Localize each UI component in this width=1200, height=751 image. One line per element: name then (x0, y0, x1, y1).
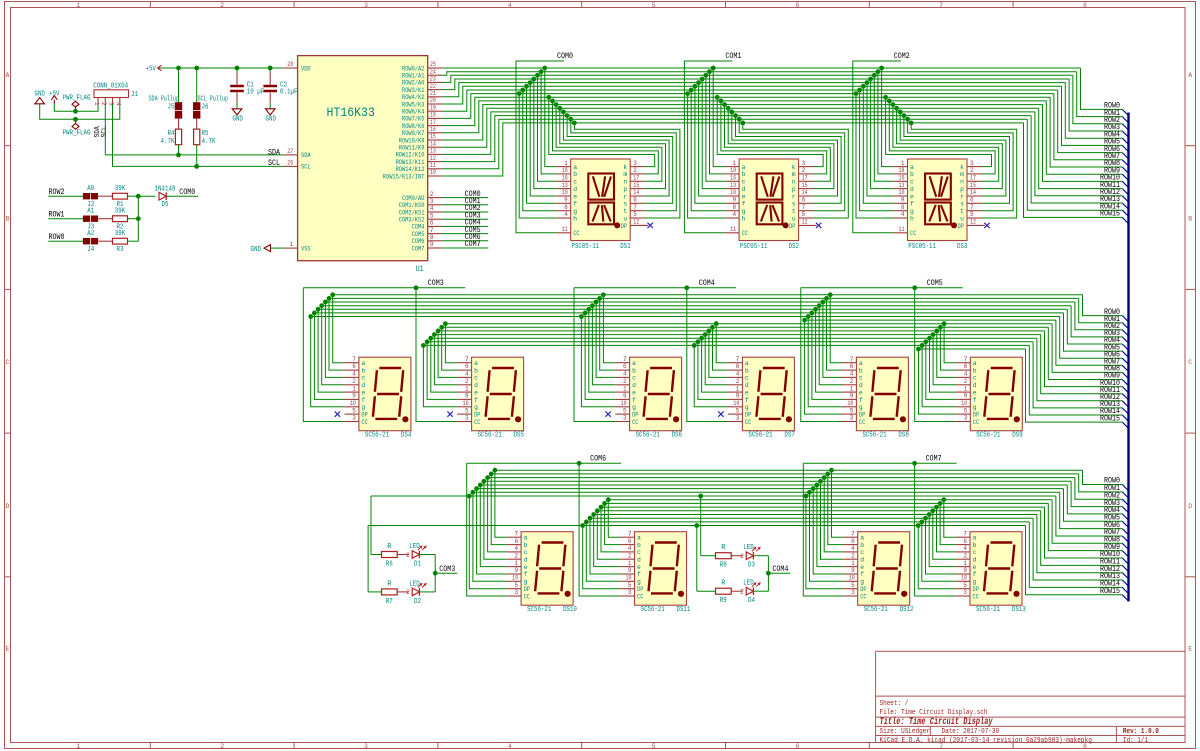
svg-text:PSC05-11: PSC05-11 (740, 243, 768, 251)
svg-text:b: b (973, 542, 977, 549)
svg-text:4: 4 (964, 371, 968, 378)
svg-text:E: E (6, 646, 10, 653)
svg-text:2: 2 (430, 191, 434, 198)
svg-text:VDD: VDD (301, 65, 311, 72)
svg-text:6: 6 (802, 197, 806, 204)
svg-text:9: 9 (623, 393, 627, 400)
svg-text:10: 10 (847, 400, 853, 407)
svg-text:SC56-21: SC56-21 (478, 432, 502, 440)
svg-text:R3: R3 (117, 246, 124, 254)
svg-text:4: 4 (732, 211, 736, 218)
svg-text:DP: DP (973, 411, 980, 418)
svg-text:VSS: VSS (301, 245, 311, 252)
svg-text:9: 9 (430, 241, 434, 248)
svg-text:3: 3 (364, 743, 368, 750)
svg-text:n: n (960, 179, 964, 186)
svg-text:a: a (632, 360, 636, 367)
svg-text:2: 2 (514, 553, 518, 560)
svg-text:5: 5 (430, 212, 434, 219)
svg-text:5: 5 (623, 407, 627, 414)
svg-text:s: s (792, 201, 796, 208)
svg-text:6: 6 (623, 363, 627, 370)
svg-text:b: b (361, 367, 365, 374)
svg-text:D3: D3 (748, 562, 755, 570)
svg-text:b: b (524, 542, 528, 549)
svg-text:c: c (637, 549, 641, 556)
svg-text:g: g (637, 579, 641, 586)
svg-text:3: 3 (430, 198, 434, 205)
svg-text:10: 10 (621, 400, 627, 407)
svg-text:GND: GND (232, 116, 243, 124)
svg-text:m: m (960, 171, 964, 178)
svg-text:7: 7 (802, 204, 806, 211)
svg-text:CC: CC (745, 419, 752, 426)
svg-text:6: 6 (628, 538, 632, 545)
svg-text:COM6: COM6 (590, 455, 606, 464)
svg-text:1: 1 (564, 160, 568, 167)
svg-text:COM3/KS2: COM3/KS2 (399, 217, 425, 224)
svg-text:ROW7/K5: ROW7/K5 (402, 116, 425, 123)
svg-text:p: p (792, 186, 796, 193)
svg-text:6: 6 (352, 363, 356, 370)
svg-text:d: d (910, 186, 914, 193)
svg-text:n: n (623, 179, 627, 186)
svg-text:ROW10/K8: ROW10/K8 (399, 137, 425, 144)
svg-text:SC56-21: SC56-21 (527, 606, 551, 614)
svg-text:DS3: DS3 (957, 243, 967, 251)
svg-text:a: a (860, 535, 864, 542)
svg-text:25: 25 (430, 61, 436, 68)
svg-text:5: 5 (652, 743, 656, 750)
svg-text:DP: DP (637, 586, 644, 593)
svg-text:3: 3 (736, 415, 740, 422)
svg-text:d: d (637, 557, 641, 564)
svg-text:e: e (637, 564, 641, 571)
svg-text:DS1: DS1 (620, 243, 630, 251)
svg-text:c: c (632, 375, 636, 382)
svg-text:2: 2 (406, 589, 410, 596)
svg-text:+5V: +5V (49, 91, 60, 99)
svg-text:39K: 39K (115, 208, 126, 216)
svg-text:g: g (742, 208, 746, 215)
svg-text:k: k (960, 164, 964, 171)
svg-text:ROW15: ROW15 (1100, 414, 1120, 423)
svg-text:10: 10 (730, 189, 736, 196)
svg-text:4: 4 (736, 371, 740, 378)
svg-text:14: 14 (430, 140, 436, 147)
svg-text:19: 19 (430, 104, 436, 111)
svg-text:b: b (632, 367, 636, 374)
svg-text:SDA: SDA (268, 148, 280, 157)
svg-text:3: 3 (364, 2, 368, 9)
svg-text:10: 10 (961, 575, 967, 582)
svg-text:24: 24 (430, 68, 436, 75)
svg-text:e: e (632, 389, 636, 396)
svg-text:2: 2 (970, 167, 974, 174)
svg-text:13: 13 (730, 182, 736, 189)
svg-text:10: 10 (512, 575, 518, 582)
svg-text:DP: DP (859, 411, 866, 418)
svg-text:2: 2 (352, 378, 356, 385)
svg-text:A1: A1 (87, 208, 94, 216)
svg-text:4: 4 (115, 102, 122, 106)
svg-text:a: a (637, 535, 641, 542)
svg-text:a: a (524, 535, 528, 542)
svg-text:CC: CC (910, 230, 917, 237)
svg-text:e: e (910, 193, 914, 200)
svg-text:f: f (361, 397, 365, 404)
svg-text:e: e (361, 389, 365, 396)
svg-text:CC: CC (973, 593, 980, 600)
svg-text:14: 14 (802, 189, 808, 196)
svg-text:2: 2 (628, 553, 632, 560)
svg-text:ROW13/K11: ROW13/K11 (396, 159, 425, 166)
svg-text:3: 3 (851, 589, 855, 596)
svg-text:2: 2 (220, 743, 224, 750)
svg-text:7: 7 (352, 356, 356, 363)
svg-text:m: m (792, 171, 796, 178)
svg-text:4: 4 (963, 545, 967, 552)
svg-text:16: 16 (730, 175, 736, 182)
svg-text:7: 7 (628, 530, 632, 537)
svg-text:g: g (910, 208, 914, 215)
svg-text:+5V: +5V (146, 65, 157, 73)
svg-text:COM2: COM2 (894, 52, 910, 61)
svg-text:1: 1 (623, 385, 627, 392)
svg-text:d: d (524, 557, 528, 564)
svg-text:DP: DP (524, 586, 531, 593)
svg-text:R8: R8 (720, 562, 727, 570)
svg-text:CC: CC (742, 230, 749, 237)
svg-text:5: 5 (465, 407, 469, 414)
svg-text:4.7K: 4.7K (202, 138, 217, 146)
svg-text:5: 5 (628, 582, 632, 589)
svg-text:2: 2 (736, 378, 740, 385)
svg-text:DS5: DS5 (514, 432, 524, 440)
svg-text:CONN_01X04: CONN_01X04 (93, 82, 128, 90)
svg-text:n: n (792, 179, 796, 186)
svg-text:1: 1 (901, 160, 905, 167)
svg-text:16: 16 (430, 126, 436, 133)
svg-text:a: a (742, 164, 746, 171)
svg-text:11: 11 (430, 162, 436, 169)
svg-text:5: 5 (970, 211, 974, 218)
svg-text:ROW15: ROW15 (1100, 587, 1120, 596)
svg-text:21: 21 (430, 90, 436, 97)
svg-text:DP: DP (958, 223, 965, 230)
svg-text:CC: CC (524, 593, 531, 600)
svg-text:3: 3 (964, 415, 968, 422)
svg-text:9: 9 (564, 197, 568, 204)
svg-text:R7: R7 (386, 598, 393, 606)
svg-text:SCL Pullup: SCL Pullup (198, 96, 229, 104)
svg-text:4: 4 (850, 371, 854, 378)
svg-text:5: 5 (963, 582, 967, 589)
svg-text:12: 12 (430, 155, 436, 162)
svg-text:p: p (623, 186, 627, 193)
svg-text:u: u (960, 215, 964, 222)
svg-text:b: b (745, 367, 749, 374)
svg-text:10: 10 (849, 575, 855, 582)
svg-text:8: 8 (430, 234, 434, 241)
svg-text:7: 7 (939, 2, 943, 9)
svg-text:D4: D4 (748, 597, 755, 605)
svg-text:DP: DP (860, 586, 867, 593)
svg-text:COM0: COM0 (557, 52, 573, 61)
svg-text:3: 3 (623, 415, 627, 422)
svg-text:ROW14/K12: ROW14/K12 (396, 166, 425, 173)
svg-text:14: 14 (633, 189, 639, 196)
svg-text:13: 13 (899, 182, 905, 189)
svg-text:4: 4 (514, 545, 518, 552)
svg-text:B: B (6, 216, 10, 223)
svg-text:11: 11 (562, 226, 568, 233)
svg-text:B: B (1188, 216, 1192, 223)
svg-text:26: 26 (287, 159, 293, 166)
svg-text:6: 6 (430, 220, 434, 227)
svg-text:a: a (910, 164, 914, 171)
svg-text:SC56-21: SC56-21 (365, 432, 389, 440)
svg-text:c: c (973, 549, 977, 556)
svg-text:ROW9/K7: ROW9/K7 (402, 130, 425, 137)
svg-text:1: 1 (465, 385, 469, 392)
svg-text:SC56-21: SC56-21 (636, 432, 660, 440)
svg-text:b: b (973, 367, 977, 374)
svg-text:4: 4 (352, 371, 356, 378)
svg-text:5: 5 (850, 407, 854, 414)
svg-text:e: e (573, 193, 577, 200)
svg-text:1: 1 (732, 160, 736, 167)
svg-text:a: a (745, 360, 749, 367)
svg-text:2: 2 (220, 2, 224, 9)
svg-text:COM7: COM7 (926, 455, 942, 464)
svg-text:1: 1 (76, 2, 80, 9)
svg-text:GND: GND (251, 246, 262, 254)
svg-text:CC: CC (361, 419, 368, 426)
svg-text:18: 18 (730, 167, 736, 174)
svg-text:7: 7 (736, 356, 740, 363)
svg-text:SC56-21: SC56-21 (748, 432, 772, 440)
svg-text:5: 5 (851, 582, 855, 589)
svg-text:9: 9 (901, 197, 905, 204)
svg-text:A0: A0 (87, 185, 94, 193)
svg-text:18: 18 (899, 167, 905, 174)
svg-text:ROW2/A0: ROW2/A0 (402, 80, 425, 87)
svg-text:d: d (632, 382, 636, 389)
svg-text:16: 16 (899, 175, 905, 182)
svg-text:g: g (573, 208, 577, 215)
svg-text:DP: DP (632, 411, 639, 418)
svg-text:J5: J5 (168, 104, 175, 112)
svg-text:2: 2 (740, 589, 744, 596)
svg-text:m: m (623, 171, 627, 178)
svg-text:4: 4 (465, 371, 469, 378)
svg-text:COM5: COM5 (412, 231, 425, 238)
svg-text:Title: Time Circuit Display: Title: Time Circuit Display (880, 716, 994, 728)
svg-text:D: D (6, 503, 10, 510)
svg-text:39K: 39K (115, 230, 126, 238)
svg-text:ROW15/K13/INT: ROW15/K13/INT (383, 173, 425, 180)
svg-text:1: 1 (93, 102, 100, 106)
svg-text:PSC05-11: PSC05-11 (908, 243, 936, 251)
svg-text:R4: R4 (168, 130, 175, 138)
svg-text:18: 18 (562, 167, 568, 174)
svg-text:g: g (474, 404, 478, 411)
svg-text:h: h (910, 215, 914, 222)
svg-text:2: 2 (465, 378, 469, 385)
svg-text:SC56-21: SC56-21 (864, 606, 888, 614)
svg-text:3: 3 (352, 415, 356, 422)
svg-text:ROW0/A2: ROW0/A2 (402, 65, 425, 72)
svg-text:SC56-21: SC56-21 (641, 606, 665, 614)
svg-text:10: 10 (562, 189, 568, 196)
svg-text:b: b (742, 171, 746, 178)
svg-text:8: 8 (901, 204, 905, 211)
svg-text:KiCad E.D.A. kicad (2017-03-1: KiCad E.D.A. kicad (2017-03-14 revision … (880, 737, 1092, 745)
svg-text:PSC05-11: PSC05-11 (572, 243, 600, 251)
svg-text:d: d (859, 382, 863, 389)
svg-text:1: 1 (963, 560, 967, 567)
svg-text:e: e (524, 564, 528, 571)
svg-text:c: c (573, 179, 577, 186)
svg-text:g: g (973, 404, 977, 411)
svg-text:b: b (573, 171, 577, 178)
svg-text:9: 9 (628, 567, 632, 574)
svg-text:CC: CC (632, 419, 639, 426)
svg-text:14: 14 (970, 189, 976, 196)
svg-text:23: 23 (430, 76, 436, 83)
svg-text:f: f (742, 201, 746, 208)
svg-text:p: p (960, 186, 964, 193)
svg-text:Date: 2017-07-30: Date: 2017-07-30 (942, 728, 1000, 736)
svg-text:SCL: SCL (301, 164, 311, 171)
svg-text:4.7K: 4.7K (161, 138, 176, 146)
svg-text:7: 7 (963, 530, 967, 537)
svg-text:D5: D5 (162, 201, 169, 209)
svg-text:d: d (742, 186, 746, 193)
svg-text:4: 4 (901, 211, 905, 218)
svg-text:d: d (474, 382, 478, 389)
svg-text:R6: R6 (386, 561, 393, 569)
svg-text:t: t (792, 208, 796, 215)
svg-text:r: r (792, 193, 796, 200)
svg-text:SC56-21: SC56-21 (976, 606, 1000, 614)
svg-text:7: 7 (465, 356, 469, 363)
svg-text:4: 4 (508, 743, 512, 750)
svg-text:D: D (1188, 503, 1192, 510)
svg-text:f: f (973, 571, 977, 578)
svg-text:GND: GND (266, 116, 277, 124)
svg-text:DP: DP (745, 411, 752, 418)
svg-text:7: 7 (970, 204, 974, 211)
svg-text:2: 2 (850, 378, 854, 385)
svg-text:10: 10 (350, 400, 356, 407)
svg-text:e: e (973, 564, 977, 571)
svg-text:2: 2 (633, 167, 637, 174)
svg-text:DS10: DS10 (563, 606, 577, 614)
svg-text:10: 10 (961, 400, 967, 407)
svg-text:6: 6 (795, 2, 799, 9)
svg-text:5: 5 (652, 2, 656, 9)
svg-text:4: 4 (508, 2, 512, 9)
svg-text:a: a (973, 535, 977, 542)
svg-text:COM1: COM1 (725, 52, 741, 61)
svg-text:r: r (623, 193, 627, 200)
svg-text:9: 9 (964, 393, 968, 400)
svg-text:E: E (1188, 646, 1192, 653)
svg-text:15: 15 (430, 133, 436, 140)
svg-text:3: 3 (970, 160, 974, 167)
svg-text:9: 9 (732, 197, 736, 204)
svg-text:R5: R5 (202, 130, 209, 138)
svg-text:c: c (860, 549, 864, 556)
svg-text:DS7: DS7 (784, 432, 794, 440)
svg-text:t: t (623, 208, 627, 215)
svg-text:J1: J1 (131, 91, 138, 99)
svg-text:7: 7 (851, 530, 855, 537)
svg-text:c: c (361, 375, 365, 382)
svg-text:DS8: DS8 (898, 432, 908, 440)
svg-text:g: g (524, 579, 528, 586)
svg-text:9: 9 (736, 393, 740, 400)
svg-text:2: 2 (100, 102, 107, 106)
svg-text:a: a (859, 360, 863, 367)
svg-text:c: c (742, 179, 746, 186)
svg-text:10 µF: 10 µF (247, 88, 264, 96)
svg-text:15: 15 (802, 182, 808, 189)
svg-text:4: 4 (851, 545, 855, 552)
svg-text:7: 7 (964, 356, 968, 363)
svg-text:1: 1 (851, 560, 855, 567)
svg-text:9: 9 (352, 393, 356, 400)
svg-text:u: u (623, 215, 627, 222)
svg-text:d: d (973, 382, 977, 389)
svg-text:ROW11/K9: ROW11/K9 (399, 145, 425, 152)
svg-text:10: 10 (733, 400, 739, 407)
svg-text:DS12: DS12 (900, 606, 914, 614)
svg-text:c: c (474, 375, 478, 382)
svg-text:4: 4 (628, 545, 632, 552)
svg-text:10: 10 (430, 169, 436, 176)
svg-text:D2: D2 (414, 598, 421, 606)
svg-text:3: 3 (628, 589, 632, 596)
svg-text:c: c (973, 375, 977, 382)
svg-text:b: b (474, 367, 478, 374)
svg-text:g: g (973, 579, 977, 586)
svg-text:SC56-21: SC56-21 (862, 432, 886, 440)
svg-text:COM3: COM3 (428, 279, 444, 288)
svg-text:a: a (474, 360, 478, 367)
svg-text:8: 8 (1083, 2, 1087, 9)
svg-text:12: 12 (802, 219, 808, 226)
svg-text:Sheet: /: Sheet: / (880, 700, 909, 708)
svg-text:CC: CC (860, 593, 867, 600)
svg-text:f: f (859, 397, 863, 404)
svg-text:4: 4 (623, 371, 627, 378)
svg-text:C: C (6, 359, 10, 366)
svg-text:10: 10 (626, 575, 632, 582)
svg-text:ROW4/K2: ROW4/K2 (402, 94, 425, 101)
svg-text:d: d (573, 186, 577, 193)
svg-text:CC: CC (474, 419, 481, 426)
svg-text:2: 2 (740, 553, 744, 560)
svg-text:3: 3 (802, 160, 806, 167)
svg-text:g: g (860, 579, 864, 586)
svg-text:7: 7 (430, 227, 434, 234)
svg-text:f: f (573, 201, 577, 208)
svg-text:a: a (573, 164, 577, 171)
svg-text:7: 7 (850, 356, 854, 363)
